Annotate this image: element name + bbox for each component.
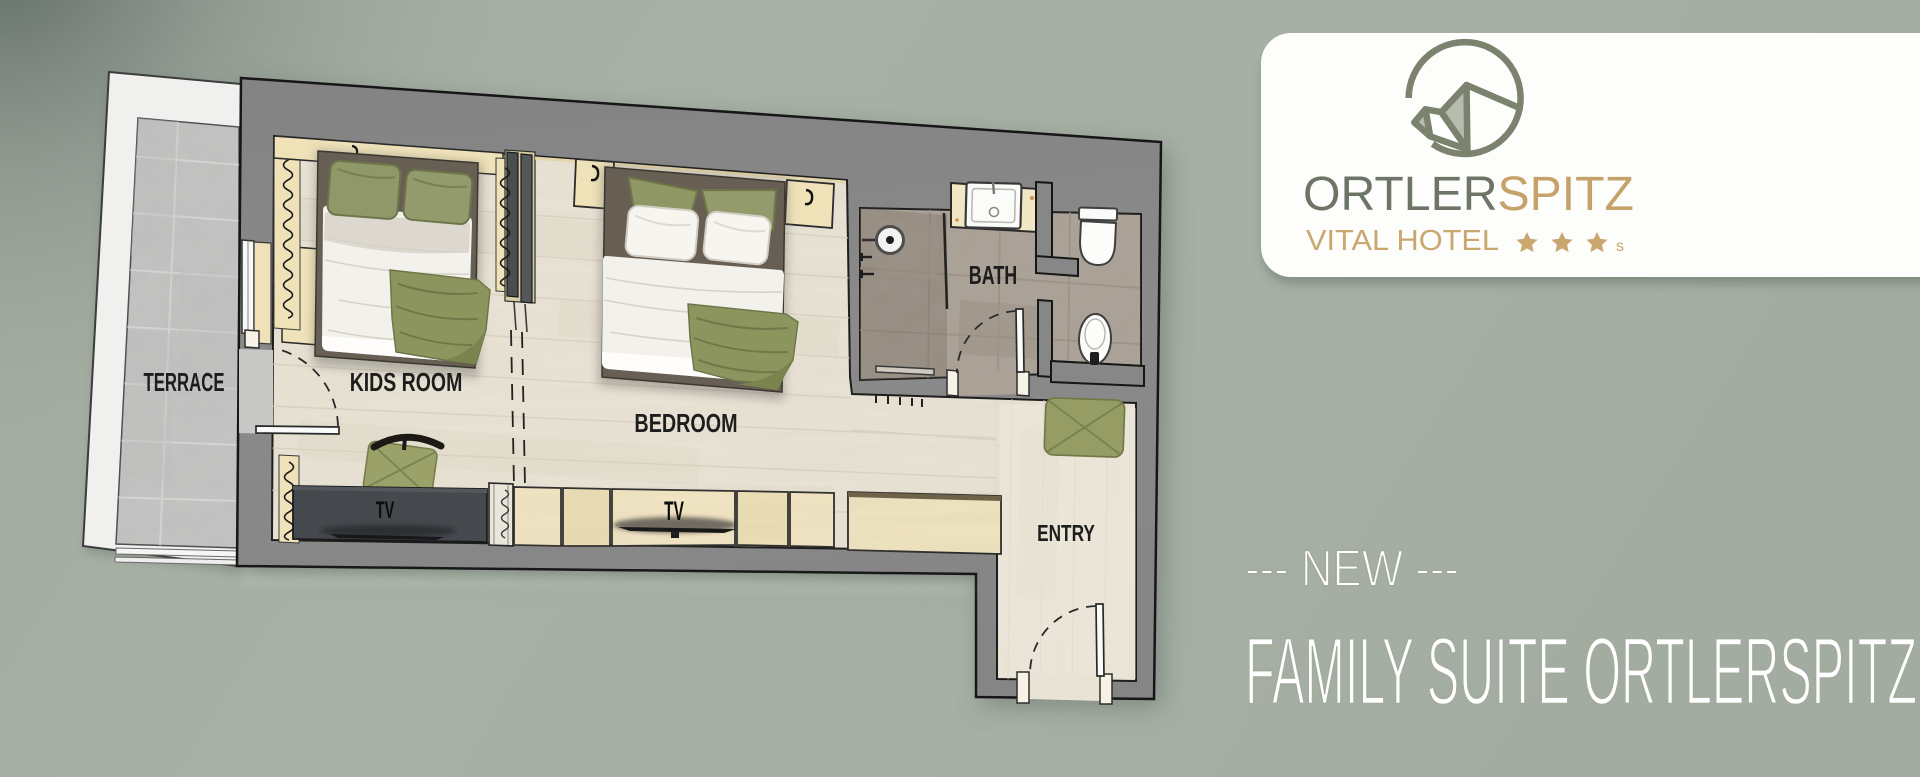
svg-text:ENTRY: ENTRY [1037, 522, 1095, 547]
svg-text:TV: TV [376, 497, 395, 524]
svg-text:TERRACE: TERRACE [143, 367, 224, 397]
svg-text:BEDROOM: BEDROOM [634, 408, 737, 437]
svg-text:FAMILY SUITE ORTLERSPITZ: FAMILY SUITE ORTLERSPITZ [1245, 618, 1917, 725]
svg-text:KIDS ROOM: KIDS ROOM [350, 367, 463, 396]
svg-text:BATH: BATH [969, 261, 1017, 290]
svg-text:--- NEW ---: --- NEW --- [1245, 540, 1459, 598]
svg-text:s: s [1616, 238, 1624, 255]
svg-text:VITAL HOTEL: VITAL HOTEL [1306, 225, 1499, 257]
svg-text:ORTLERSPITZ: ORTLERSPITZ [1303, 168, 1634, 221]
svg-text:TV: TV [664, 495, 684, 526]
